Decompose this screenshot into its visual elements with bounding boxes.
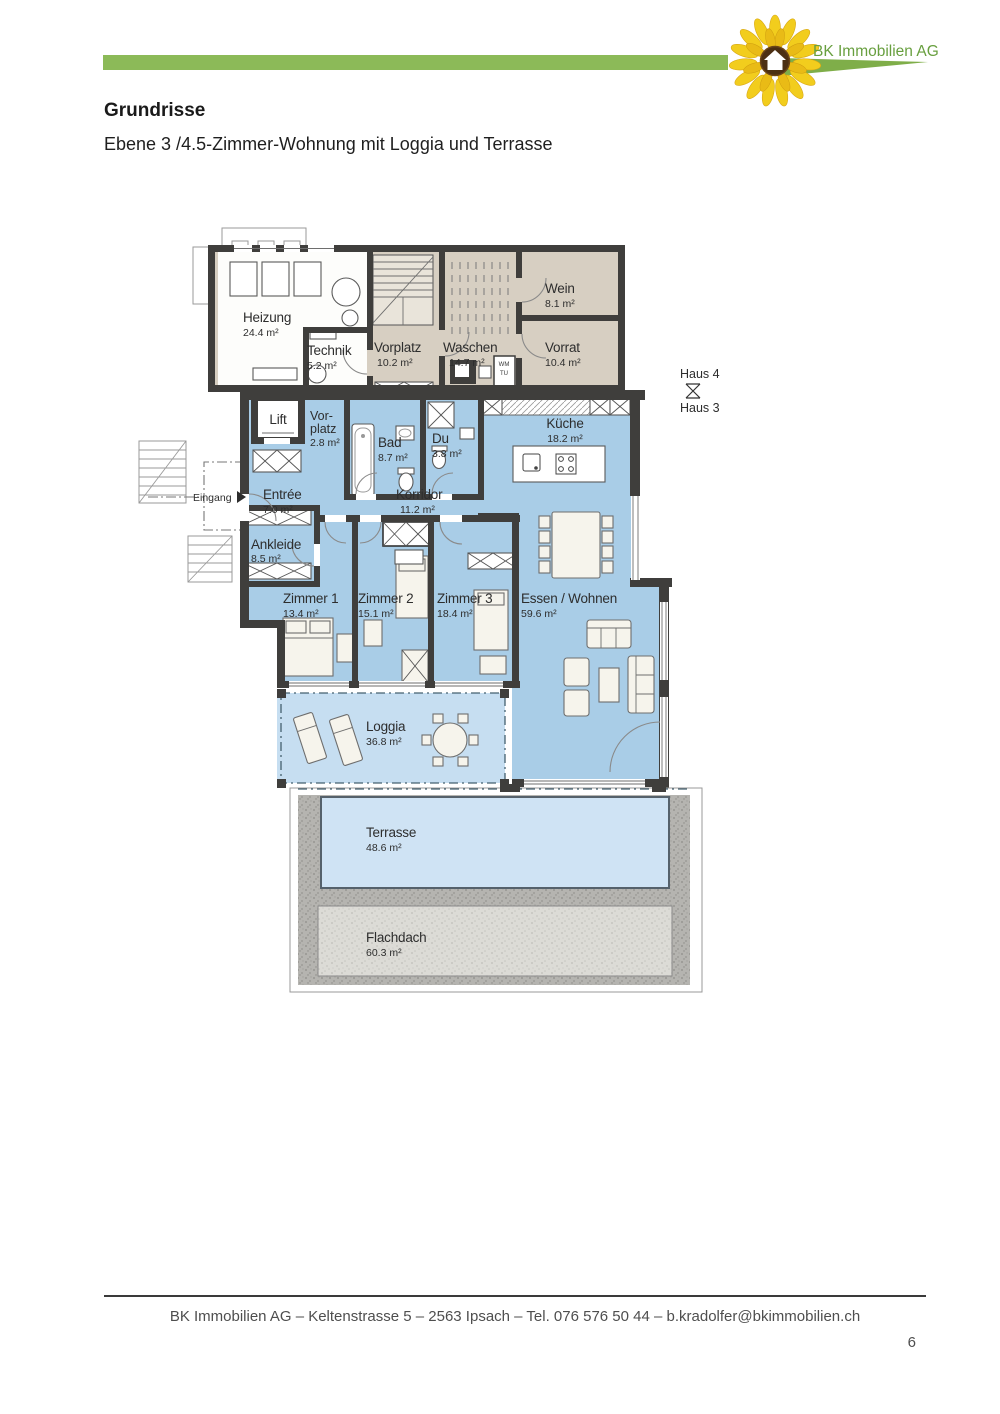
label-vorplatz-og: Vorplatz (374, 340, 422, 355)
label-essen-wohnen: Essen / Wohnen (521, 591, 617, 606)
label-zimmer1: Zimmer 1 (283, 591, 338, 606)
label-haus3: Haus 3 (680, 401, 720, 415)
area-heizung: 24.4 m² (243, 327, 279, 339)
area-terrasse: 48.6 m² (366, 842, 402, 854)
terrace-section (290, 784, 702, 992)
label-eingang: Eingang (193, 492, 232, 504)
area-entree: 7.0 m² (263, 504, 293, 516)
label-vorplatz-wohnung-2: platz (310, 422, 336, 436)
area-waschen: 14.7 m² (449, 357, 485, 369)
area-korridor: 11.2 m² (400, 504, 435, 516)
area-ankleide: 8.5 m² (251, 553, 281, 565)
area-wein: 8.1 m² (545, 298, 575, 310)
document-page: BK Immobilien AG Grundrisse Ebene 3 /4.5… (0, 0, 1000, 1414)
area-zimmer2: 15.1 m² (358, 608, 394, 620)
exterior-stairs-lower (188, 536, 232, 582)
area-vorrat: 10.4 m² (545, 357, 581, 369)
area-flachdach: 60.3 m² (366, 947, 402, 959)
area-zimmer3: 18.4 m² (437, 608, 473, 620)
label-heizung: Heizung (243, 310, 291, 325)
area-du: 3.8 m² (432, 448, 462, 460)
label-wein: Wein (545, 281, 575, 296)
footer-divider (104, 1295, 926, 1297)
area-kueche: 18.2 m² (547, 433, 583, 445)
label-entree: Entrée (263, 487, 302, 502)
label-vorplatz-wohnung-1: Vor- (310, 409, 333, 423)
label-du: Du (432, 431, 449, 446)
staircase (373, 255, 433, 325)
label-lift: Lift (269, 412, 287, 427)
label-korridor: Korridor (396, 487, 443, 502)
label-kueche: Küche (546, 416, 583, 431)
area-essen-wohnen: 59.6 m² (521, 608, 557, 620)
label-ankleide: Ankleide (251, 537, 301, 552)
floor-plan: WM TU (0, 0, 1000, 1414)
exterior-stairs-upper (139, 441, 186, 503)
drying-area (445, 256, 513, 336)
washer-label: WM (499, 362, 510, 368)
area-zimmer1: 13.4 m² (283, 608, 319, 620)
area-loggia: 36.8 m² (366, 736, 402, 748)
label-waschen: Waschen (443, 340, 497, 355)
area-vorplatz-wohnung: 2.8 m² (310, 437, 340, 449)
label-haus4: Haus 4 (680, 367, 720, 381)
label-zimmer2: Zimmer 2 (358, 591, 413, 606)
label-terrasse: Terrasse (366, 825, 416, 840)
kitchen-island (513, 446, 605, 482)
label-bad: Bad (378, 435, 401, 450)
label-vorrat: Vorrat (545, 340, 580, 355)
dryer-label: TU (500, 371, 508, 377)
area-vorplatz-og: 10.2 m² (377, 357, 413, 369)
zimmer3-wardrobe (468, 553, 518, 569)
area-bad: 8.7 m² (378, 452, 408, 464)
area-technik: 5.2 m² (307, 360, 337, 372)
section-divider-icon (686, 384, 700, 398)
label-loggia: Loggia (366, 719, 406, 734)
label-flachdach: Flachdach (366, 930, 427, 945)
hall-closet (253, 450, 301, 472)
page-number: 6 (104, 1334, 916, 1351)
kitchen-cabinets (482, 398, 630, 415)
footer-contact: BK Immobilien AG – Keltenstrasse 5 – 256… (104, 1308, 926, 1325)
label-technik: Technik (307, 343, 352, 358)
label-zimmer3: Zimmer 3 (437, 591, 492, 606)
